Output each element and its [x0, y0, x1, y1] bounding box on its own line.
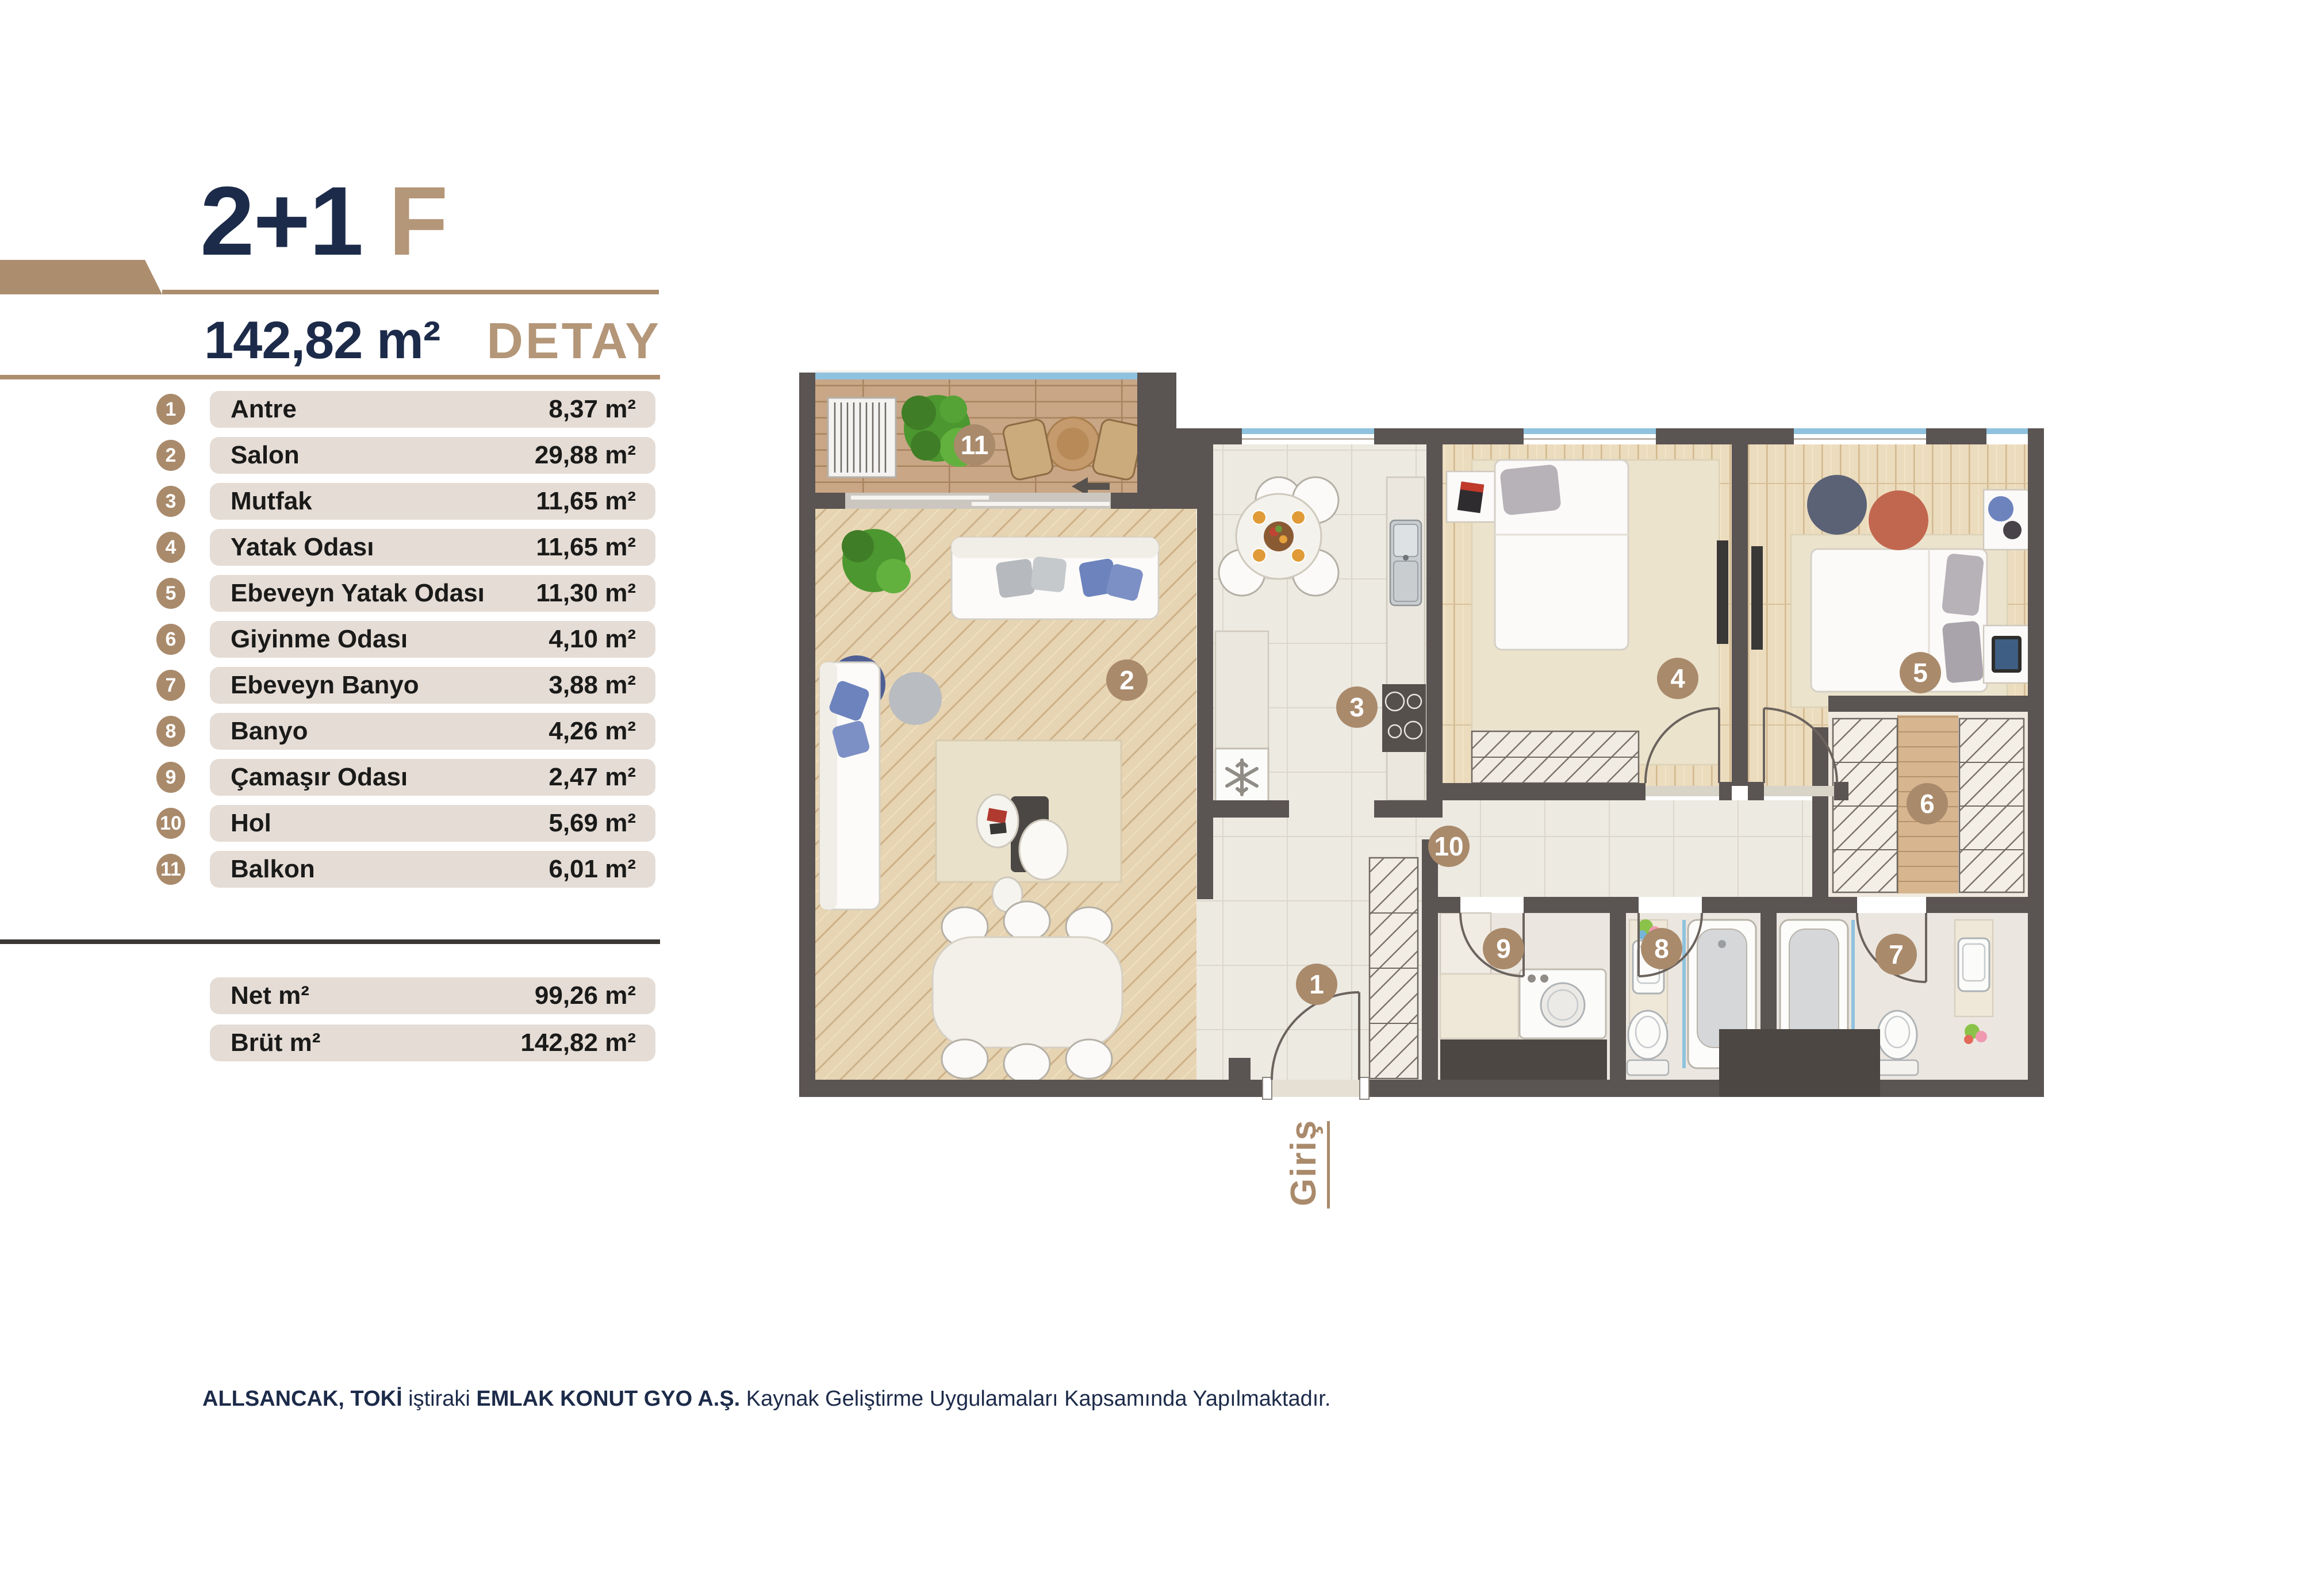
- wall-bedroom4: [1443, 783, 1646, 800]
- plan-badge-1: 1: [1296, 964, 1337, 1005]
- balcony-table-top: [1057, 428, 1089, 460]
- toilet: [1878, 1011, 1917, 1059]
- wall-kitchen-hall: [1374, 800, 1443, 818]
- plan-badge-4: 4: [1657, 658, 1698, 699]
- plan-badge-5: 5: [1900, 652, 1941, 693]
- sliding-door-panel: [851, 496, 989, 500]
- washer-knob: [1528, 975, 1536, 983]
- sliding-door: [845, 493, 1111, 509]
- tv-unit: [1751, 546, 1763, 650]
- wall-pier: [1229, 1058, 1251, 1080]
- decor-cushion: [2003, 521, 2022, 539]
- pillow: [1499, 464, 1562, 516]
- wall-bath-top: [1702, 897, 1857, 913]
- magazine: [989, 823, 1007, 835]
- wall-laundry-bath: [1610, 897, 1626, 1097]
- shaft: [1719, 1029, 1880, 1097]
- wall-dressing: [1812, 727, 1828, 913]
- window: [1986, 426, 2028, 444]
- dining-chair: [1004, 1044, 1050, 1083]
- plate: [1291, 548, 1305, 562]
- toilet-tank: [1627, 1060, 1669, 1075]
- plan-badge-6: 6: [1907, 783, 1948, 824]
- wall-bedrooms: [1732, 444, 1748, 786]
- wall-living-kitchen: [1197, 509, 1213, 899]
- svg-text:3: 3: [1349, 692, 1364, 722]
- wall-left: [799, 373, 815, 1097]
- plate: [1252, 511, 1266, 524]
- beanbag: [1869, 490, 1928, 550]
- plan-badge-8: 8: [1641, 928, 1682, 969]
- shaft: [1440, 1039, 1607, 1080]
- plate: [1252, 548, 1266, 562]
- balcony-glass: [815, 373, 1137, 379]
- entrance-label-rule: [1327, 1121, 1330, 1208]
- door-jamb: [1263, 1077, 1272, 1099]
- entrance-threshold: [1271, 1080, 1360, 1097]
- floor-plan: 1 2 3 4 5 6 7 8 9 10 11 Giriş: [0, 0, 2309, 1596]
- laundry-counter: [1440, 974, 1518, 1038]
- pouf: [889, 672, 942, 725]
- sliding-door-panel: [972, 502, 1110, 506]
- plate: [1291, 511, 1305, 524]
- toilet-tank: [1877, 1060, 1918, 1075]
- wall-bath-top: [1438, 897, 1460, 913]
- dining-chair: [1066, 1039, 1112, 1079]
- plan-badge-11: 11: [954, 424, 995, 466]
- wall-balcony-side: [1137, 373, 1176, 509]
- tablet-screen: [1995, 639, 2018, 669]
- door-jamb: [1748, 782, 1764, 800]
- fruit: [1279, 535, 1287, 543]
- dining-chair: [942, 1039, 988, 1079]
- toilet: [1628, 1011, 1667, 1059]
- threshold: [1764, 786, 1834, 796]
- plan-badge-2: 2: [1106, 659, 1148, 701]
- plan-badge-9: 9: [1483, 928, 1524, 969]
- door-jamb: [1834, 782, 1848, 800]
- svg-text:2: 2: [1119, 665, 1134, 695]
- svg-text:8: 8: [1654, 934, 1669, 964]
- svg-text:1: 1: [1309, 969, 1324, 999]
- wall-corner: [1176, 428, 1213, 509]
- window: [1524, 426, 1656, 444]
- side-table: [1019, 820, 1068, 880]
- pillow: [1942, 553, 1985, 616]
- svg-text:9: 9: [1496, 934, 1511, 964]
- plan-badge-7: 7: [1875, 934, 1917, 975]
- dining-chair: [1004, 901, 1050, 941]
- decor-cushion: [1988, 496, 2013, 521]
- soap-icon: [1976, 1031, 1987, 1042]
- cushion: [995, 558, 1035, 598]
- washer-knob: [1540, 975, 1548, 983]
- svg-text:Giriş: Giriş: [1284, 1119, 1324, 1206]
- plan-badge-3: 3: [1336, 686, 1378, 728]
- kitchen-island: [1215, 631, 1268, 749]
- threshold: [1646, 786, 1719, 796]
- svg-text:7: 7: [1889, 939, 1904, 969]
- entry-hall: [1370, 858, 1418, 1079]
- wall-kitchen-bedroom: [1426, 444, 1443, 800]
- cabinet: [1440, 913, 1491, 974]
- door-jamb: [1719, 782, 1732, 800]
- svg-text:11: 11: [961, 430, 989, 460]
- svg-text:5: 5: [1913, 658, 1928, 688]
- wall-right: [2028, 428, 2044, 1097]
- plan-badge-10: 10: [1428, 826, 1470, 867]
- svg-text:10: 10: [1434, 831, 1463, 861]
- window: [1794, 426, 1926, 444]
- tv-unit: [1717, 540, 1728, 644]
- fruit: [1275, 525, 1282, 532]
- window: [1242, 426, 1374, 444]
- bedroom-4: [1447, 460, 1728, 783]
- sink-bowl: [1394, 524, 1418, 557]
- wall-bottom: [799, 1080, 1271, 1097]
- pillow: [1942, 620, 1984, 683]
- wall-bottom: [1360, 1080, 2044, 1097]
- svg-text:4: 4: [1670, 663, 1685, 693]
- soap-icon: [1964, 1035, 1973, 1044]
- wall-bath-top: [1926, 897, 2044, 913]
- door-jamb: [1360, 1077, 1369, 1099]
- sofa-back: [952, 538, 1159, 558]
- drain-icon: [1718, 940, 1726, 948]
- entrance-label: Giriş: [1284, 1119, 1330, 1208]
- dining-table: [933, 937, 1122, 1048]
- svg-text:6: 6: [1920, 789, 1935, 819]
- shower-glass: [1682, 920, 1686, 1068]
- beanbag: [1807, 475, 1867, 535]
- wall-bedroom5: [1828, 696, 2044, 712]
- wall-entry-laundry: [1422, 839, 1438, 1097]
- cushion: [1030, 556, 1067, 593]
- faucet-icon: [1403, 555, 1409, 561]
- wall-kitchen-hall: [1213, 800, 1289, 818]
